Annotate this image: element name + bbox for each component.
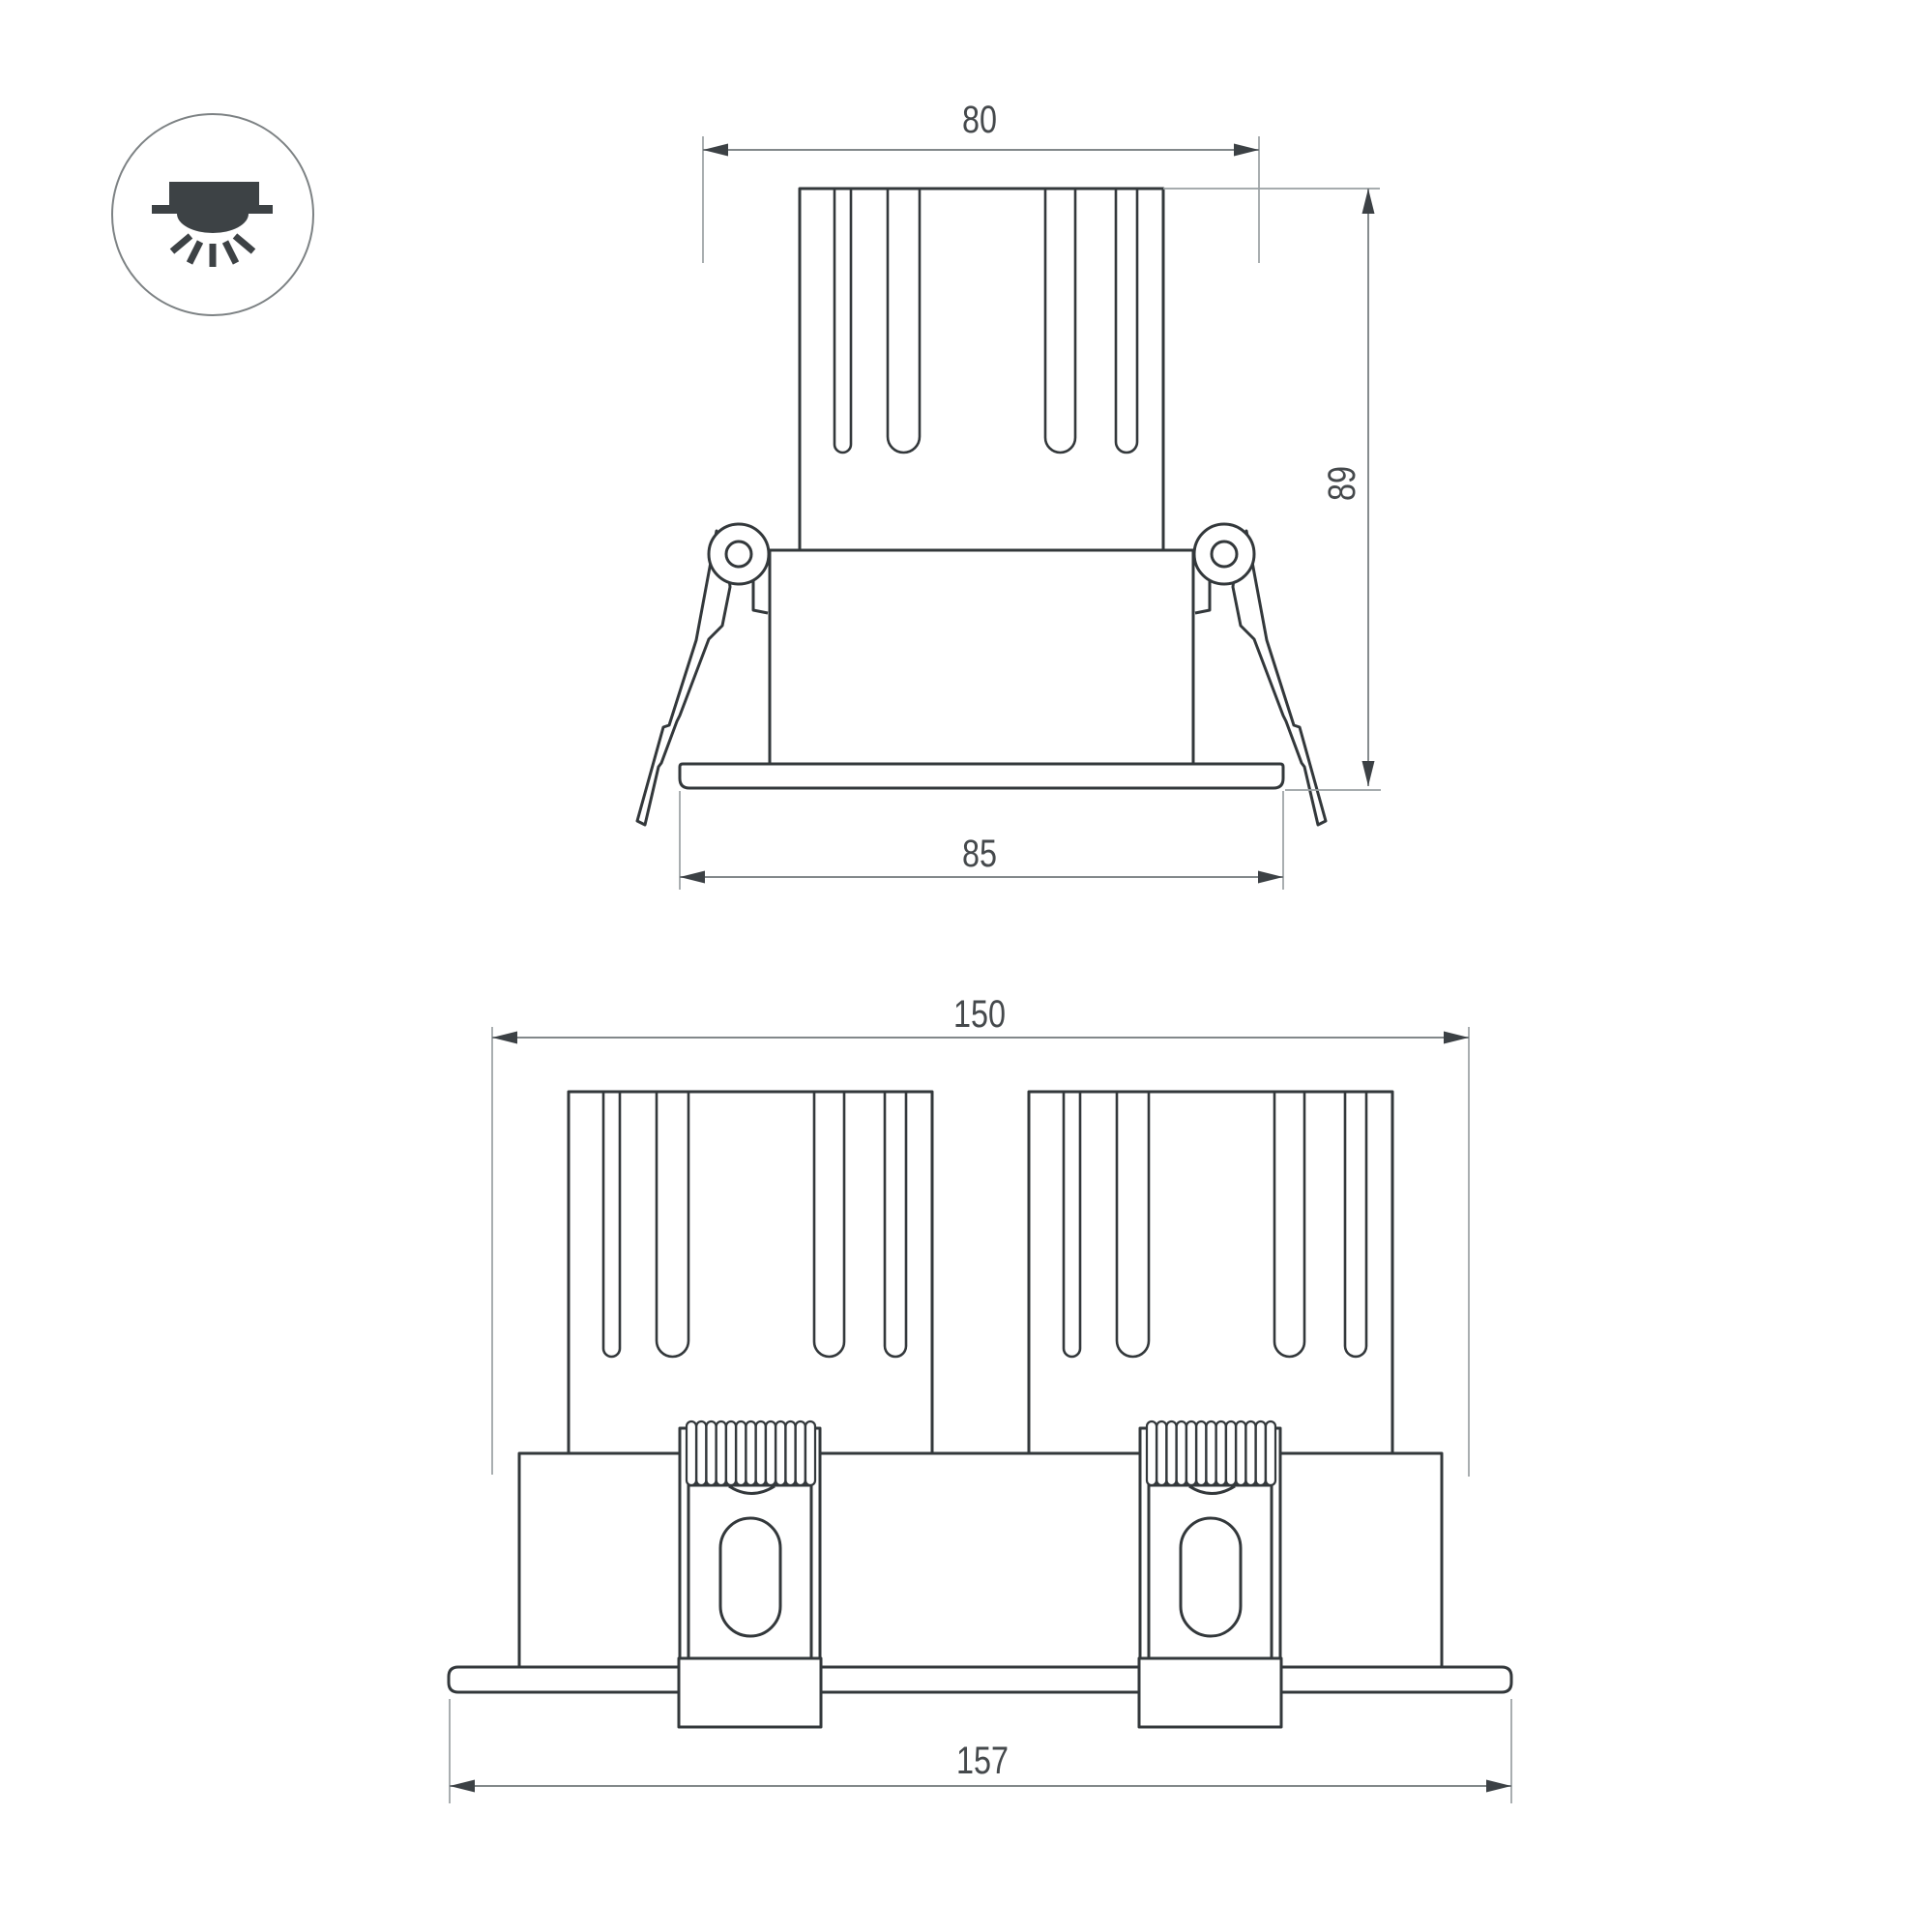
spring-coil bbox=[1236, 1421, 1245, 1485]
dimension-value: 85 bbox=[962, 833, 997, 875]
spring-coil bbox=[805, 1421, 815, 1485]
heatsink-body bbox=[800, 189, 1163, 550]
dimension-value: 157 bbox=[956, 1740, 1009, 1782]
spring-coil bbox=[756, 1421, 766, 1485]
spring-coil bbox=[707, 1421, 717, 1485]
spring-coil bbox=[726, 1421, 736, 1485]
double-flange bbox=[449, 1667, 1511, 1692]
spring-coil bbox=[1147, 1421, 1156, 1485]
double-clamp-right bbox=[1139, 1421, 1281, 1727]
spring-coil bbox=[796, 1421, 805, 1485]
spring-coil bbox=[786, 1421, 796, 1485]
spring-coil bbox=[1256, 1421, 1266, 1485]
icon-lamp-body bbox=[169, 182, 259, 205]
spring-coil bbox=[1246, 1421, 1256, 1485]
double-clamp-left bbox=[679, 1421, 821, 1727]
clip-pivot-hole bbox=[1212, 542, 1237, 567]
spring-coil bbox=[1167, 1421, 1177, 1485]
spring-coil bbox=[1266, 1421, 1275, 1485]
single-flange bbox=[680, 764, 1283, 788]
double-heatsink-right bbox=[1029, 1092, 1392, 1453]
heatsink-body bbox=[1029, 1092, 1392, 1453]
spring-coil bbox=[1186, 1421, 1196, 1485]
spring-coil bbox=[766, 1421, 776, 1485]
spring-coil bbox=[696, 1421, 706, 1485]
spring-coil bbox=[736, 1421, 746, 1485]
spring-coil bbox=[1207, 1421, 1216, 1485]
single-heatsink bbox=[800, 189, 1163, 550]
dimension-value: 80 bbox=[962, 99, 997, 141]
double-housing bbox=[519, 1453, 1442, 1667]
spring-coil bbox=[687, 1421, 696, 1485]
spring-coil bbox=[1216, 1421, 1226, 1485]
spring-coil bbox=[1196, 1421, 1206, 1485]
spring-coil bbox=[746, 1421, 756, 1485]
downlight-icon bbox=[112, 114, 313, 315]
clamp-slot-cutout bbox=[720, 1518, 780, 1636]
spring-coil bbox=[776, 1421, 785, 1485]
clamp-foot bbox=[679, 1658, 821, 1727]
spring-coil bbox=[717, 1421, 726, 1485]
drawing-sheet: 80 89 85 bbox=[0, 0, 1932, 1932]
dimension-value: 150 bbox=[953, 993, 1006, 1036]
double-heatsink-left bbox=[569, 1092, 932, 1453]
single-housing bbox=[770, 550, 1193, 764]
spring-coil bbox=[1226, 1421, 1236, 1485]
technical-drawing: 80 89 85 bbox=[0, 0, 1932, 1932]
spring-coil bbox=[1156, 1421, 1166, 1485]
icon-ceiling-flange bbox=[152, 205, 273, 214]
clamp-foot bbox=[1139, 1658, 1281, 1727]
heatsink-body bbox=[569, 1092, 932, 1453]
spring-coil bbox=[1177, 1421, 1186, 1485]
dimension-value: 89 bbox=[1321, 466, 1363, 501]
clamp-slot-cutout bbox=[1181, 1518, 1241, 1636]
clip-pivot-hole bbox=[726, 542, 751, 567]
